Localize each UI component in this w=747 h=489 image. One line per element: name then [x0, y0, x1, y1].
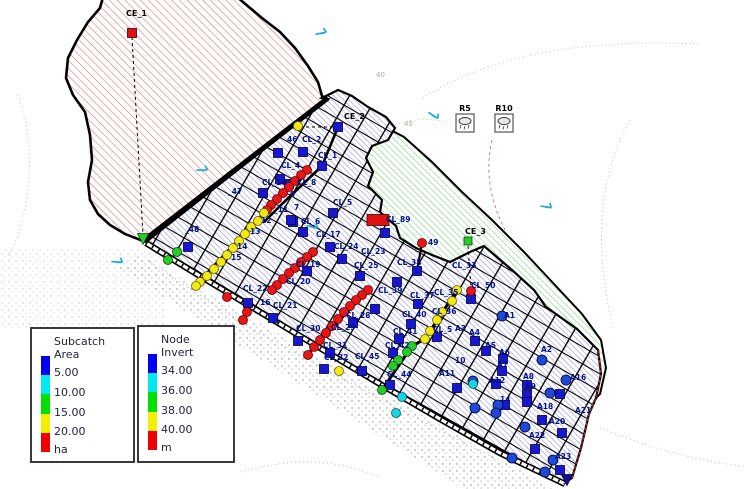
map-node[interactable] — [304, 351, 313, 360]
map-label: A9 — [525, 382, 536, 391]
rain-gauge-label: R5 — [459, 104, 471, 113]
map-label: A2 — [541, 345, 552, 354]
map-label: CL_1 — [318, 151, 337, 160]
map-node[interactable] — [320, 365, 329, 374]
map-label: CL_42 — [385, 341, 409, 350]
map-node[interactable] — [523, 398, 532, 407]
map-node[interactable] — [507, 453, 517, 463]
map-node[interactable] — [558, 429, 567, 438]
map-label: A16 — [570, 373, 586, 382]
street-line — [0, 0, 4, 489]
map-label: _48 — [185, 225, 199, 234]
map-node[interactable] — [358, 367, 367, 376]
street-line — [659, 0, 747, 489]
map-label: CL_6 — [301, 217, 320, 226]
map-label: 14 — [500, 395, 510, 404]
legend-value: 36.00 — [161, 384, 193, 397]
map-label: A12 — [489, 376, 505, 385]
map-node[interactable] — [192, 282, 201, 291]
legend-value: 10.00 — [54, 386, 86, 399]
contour-line — [601, 120, 630, 330]
map-node[interactable] — [386, 381, 395, 390]
legend-value: 20.00 — [54, 425, 86, 438]
map-label: CL_50 — [471, 281, 495, 290]
map-node[interactable] — [413, 267, 422, 276]
map-node[interactable] — [356, 272, 365, 281]
map-node[interactable] — [538, 416, 547, 425]
map-node[interactable] — [338, 255, 347, 264]
rain-gauges[interactable]: R5R10 — [456, 104, 513, 132]
map-label: 14 — [237, 242, 247, 251]
map-node[interactable] — [448, 297, 457, 306]
map-label: CE_2 — [344, 112, 365, 121]
map-label: CL_20 — [286, 277, 310, 286]
map-node[interactable] — [239, 316, 248, 325]
map-node[interactable] — [287, 216, 296, 225]
map-node[interactable] — [469, 380, 478, 389]
map-label: A11 — [439, 369, 455, 378]
street-line — [0, 0, 25, 489]
map-label: CL_29 — [331, 323, 355, 332]
map-node[interactable] — [334, 123, 343, 132]
map-label: 45 — [404, 120, 413, 128]
map-label: A22 — [529, 431, 545, 440]
map-label: CL_24 — [334, 242, 358, 251]
map-label: 40 — [376, 71, 385, 79]
map-label: CL_30 — [296, 324, 320, 333]
street-line — [680, 10, 747, 489]
map-node[interactable] — [223, 293, 232, 302]
map-node[interactable] — [244, 299, 253, 308]
map-label: A8 — [523, 372, 534, 381]
legend-value: 34.00 — [161, 364, 193, 377]
map-label: CL_36 — [432, 307, 456, 316]
legend-unit: ha — [54, 443, 68, 456]
map-label: CL_35 — [434, 288, 458, 297]
map-label: CL_41 — [393, 327, 417, 336]
rain-gauge-label: R10 — [495, 104, 513, 113]
map-label: CL_19 — [296, 260, 320, 269]
map-node[interactable] — [421, 335, 430, 344]
map-node[interactable] — [556, 390, 565, 399]
legend-node-invert[interactable]: Node Invert 34.00 36.00 38.00 40.00 m — [137, 325, 235, 463]
map-label: CL_17 — [316, 230, 340, 239]
map-node[interactable] — [217, 258, 226, 267]
map-label: 10 — [455, 356, 465, 365]
map-node[interactable] — [414, 300, 423, 309]
map-node[interactable] — [531, 445, 540, 454]
map-label: CE_1 — [126, 9, 147, 18]
map-node[interactable] — [378, 386, 387, 395]
map-node[interactable] — [540, 467, 550, 477]
map-node[interactable] — [392, 409, 401, 418]
map-label: CL_10 — [262, 178, 286, 187]
map-node[interactable] — [318, 162, 327, 171]
street-line — [576, 0, 747, 489]
map-label: CL_25 — [354, 261, 378, 270]
map-node[interactable] — [491, 408, 501, 418]
map-label: A4 — [469, 328, 480, 337]
map-label: _11 — [274, 205, 288, 214]
map-label: _47 — [228, 187, 242, 196]
map-label: 12 — [261, 216, 271, 225]
map-node[interactable] — [453, 384, 462, 393]
map-label: A1 — [504, 311, 515, 320]
map-node[interactable] — [371, 305, 380, 314]
rain-cloud-icon — [459, 118, 471, 125]
map-label: A23 — [555, 452, 571, 461]
map-label: CL_33 — [452, 261, 476, 270]
map-node[interactable] — [184, 243, 193, 252]
map-label: CL_40 — [402, 310, 426, 319]
map-node[interactable] — [537, 355, 547, 365]
legend-colorbar — [148, 354, 157, 450]
legend-unit: m — [161, 441, 172, 454]
map-label: A3 — [455, 324, 466, 333]
map-node[interactable] — [128, 29, 137, 38]
map-label: CL_5 — [333, 198, 352, 207]
map-label: A18 — [537, 402, 553, 411]
map-label: A21 — [575, 406, 591, 415]
map-node[interactable] — [294, 337, 303, 346]
map-label: 15 — [231, 253, 241, 262]
map-node[interactable] — [418, 239, 427, 248]
map-label: A5 — [485, 341, 496, 350]
map-node[interactable] — [310, 343, 319, 352]
map-label: CL_28 — [346, 311, 370, 320]
map-label: 49 — [428, 238, 438, 247]
map-label: CL_22 — [243, 284, 267, 293]
rain-gauge-R10[interactable]: R10 — [495, 104, 513, 132]
legend-title: Node Invert — [161, 333, 193, 359]
map-label: CL_89 — [386, 215, 410, 224]
rain-gauge-R5[interactable]: R5 — [456, 104, 474, 132]
flow-arrow-icon — [315, 27, 327, 37]
legend-value: 38.00 — [161, 404, 193, 417]
flow-arrow-icon — [540, 199, 553, 211]
legend-subcatch-area[interactable]: Subcatch Area 5.00 10.00 15.00 20.00 ha — [30, 327, 135, 463]
legend-value: 5.00 — [54, 366, 79, 379]
contour-line — [8, 95, 29, 258]
map-label: CL_39 — [378, 286, 402, 295]
map-label: 9 — [290, 190, 295, 199]
map-label: CL_31 — [323, 341, 347, 350]
flow-arrow-icon — [428, 108, 440, 121]
map-node[interactable] — [299, 228, 308, 237]
legend-title: Subcatch Area — [54, 335, 105, 361]
contour-line — [240, 462, 380, 478]
map-node[interactable] — [464, 237, 472, 245]
map-label: CE_3 — [465, 227, 486, 236]
map-node[interactable] — [545, 388, 555, 398]
legend-value: 40.00 — [161, 423, 193, 436]
map-node[interactable] — [329, 209, 338, 218]
map-node[interactable] — [274, 149, 283, 158]
map-node[interactable] — [471, 337, 480, 346]
map-node[interactable] — [294, 122, 303, 131]
map-label: CL_38 — [397, 258, 421, 267]
rain-cloud-icon — [498, 118, 510, 125]
map-node[interactable] — [398, 393, 407, 402]
swmm-study-area-map: R5R10 CE_1CE_2CE_346CL_2CL_1CL_4CL_10CL_… — [0, 0, 747, 489]
map-node[interactable] — [164, 256, 173, 265]
street-line — [721, 34, 747, 489]
map-label: 13 — [250, 227, 260, 236]
map-label: CL_21 — [273, 301, 297, 310]
map-node[interactable] — [470, 403, 480, 413]
map-node[interactable] — [556, 466, 565, 475]
map-label: CL_32 — [324, 353, 348, 362]
map-label: 46 — [287, 135, 297, 144]
map-label: A7 — [497, 360, 508, 369]
map-label: A6 — [499, 348, 510, 357]
map-node[interactable] — [299, 148, 308, 157]
legend-value: 15.00 — [54, 406, 86, 419]
map-node[interactable] — [335, 367, 344, 376]
street-line — [617, 0, 747, 489]
street-line — [742, 46, 747, 489]
map-label: CL_37 — [410, 291, 434, 300]
legend-colorbar — [41, 356, 50, 452]
map-label: 16 — [260, 298, 270, 307]
map-node[interactable] — [259, 189, 268, 198]
contour-line — [423, 43, 700, 98]
map-node[interactable] — [173, 248, 182, 257]
map-node[interactable] — [210, 265, 219, 274]
map-label: CL_44 — [387, 370, 411, 379]
street-line — [700, 22, 747, 489]
map-node[interactable] — [433, 316, 442, 325]
map-label: 7 — [294, 203, 299, 212]
map-node[interactable] — [268, 286, 277, 295]
map-label: CL_45 — [355, 352, 379, 361]
map-node[interactable] — [381, 229, 390, 238]
map-label: A20 — [549, 417, 565, 426]
map-label: CL_4 — [281, 161, 300, 170]
map-label: CL_8 — [297, 178, 316, 187]
street-line — [638, 0, 747, 489]
contour-line — [600, 428, 745, 466]
map-label: CL_5 — [433, 325, 452, 334]
map-node[interactable] — [243, 308, 252, 317]
street-line — [597, 0, 747, 489]
map-label: CL_23 — [361, 247, 385, 256]
map-node[interactable] — [269, 314, 278, 323]
map-label: CL_2 — [302, 135, 321, 144]
